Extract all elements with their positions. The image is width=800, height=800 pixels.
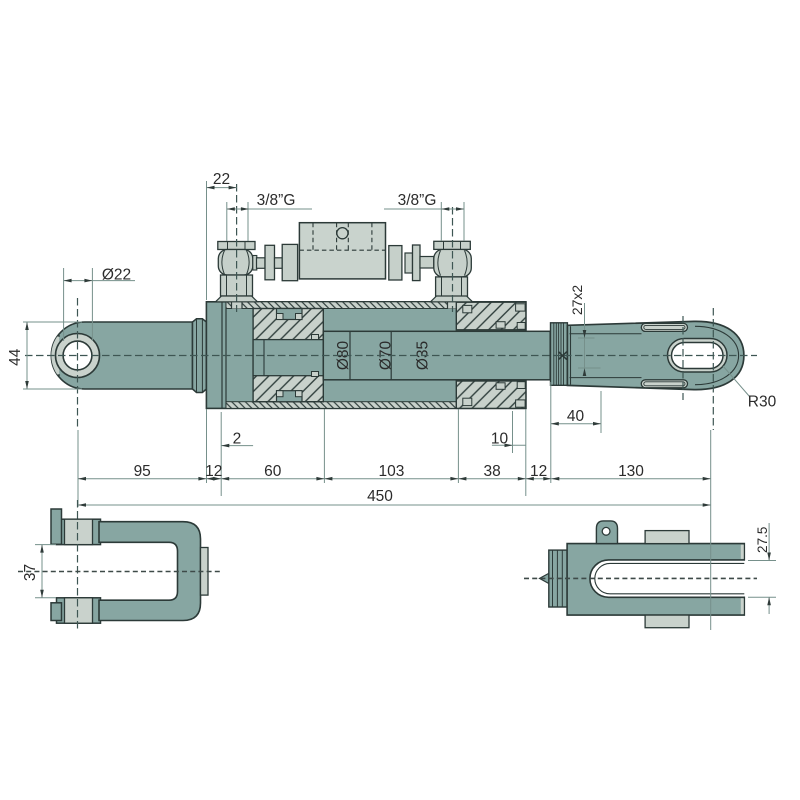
svg-text:103: 103: [378, 463, 404, 480]
svg-text:44: 44: [7, 348, 24, 366]
svg-text:38: 38: [483, 463, 500, 480]
svg-text:37: 37: [22, 564, 39, 581]
svg-text:27x2: 27x2: [569, 285, 585, 316]
svg-text:Ø22: Ø22: [102, 266, 131, 283]
svg-text:R30: R30: [748, 394, 777, 411]
svg-text:2: 2: [233, 430, 242, 447]
svg-text:40: 40: [567, 408, 585, 425]
svg-text:22: 22: [213, 171, 230, 188]
svg-text:130: 130: [618, 463, 644, 480]
svg-text:60: 60: [264, 463, 282, 480]
svg-text:12: 12: [205, 463, 222, 480]
svg-text:27.5: 27.5: [755, 527, 770, 553]
svg-text:450: 450: [367, 488, 393, 505]
svg-text:95: 95: [134, 463, 151, 480]
svg-text:3/8”G: 3/8”G: [257, 192, 296, 209]
svg-text:12: 12: [530, 463, 547, 480]
svg-text:10: 10: [491, 430, 509, 447]
svg-text:3/8”G: 3/8”G: [398, 192, 437, 209]
